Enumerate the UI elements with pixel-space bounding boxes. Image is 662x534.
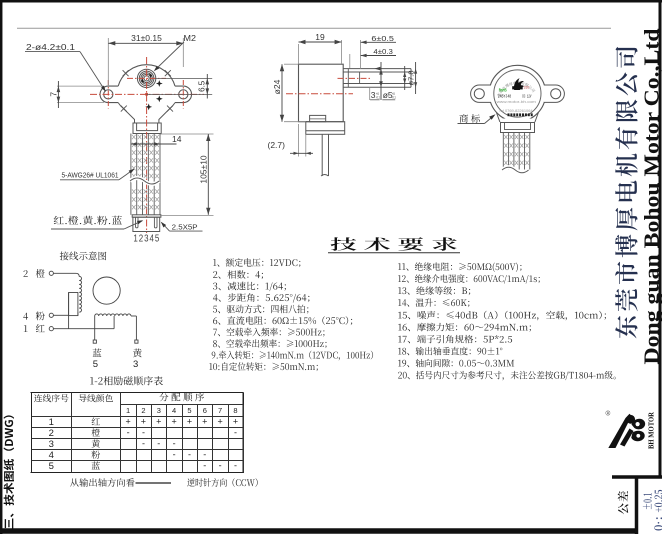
- svg-text:1: 1: [126, 406, 130, 415]
- svg-text:10:自定位转矩：≥50mN.m；: 10:自定位转矩：≥50mN.m；: [209, 359, 324, 373]
- svg-text:-0.1: -0.1: [376, 96, 380, 100]
- svg-text:6: 6: [203, 406, 207, 415]
- svg-text:+: +: [218, 417, 223, 427]
- svg-text:蓝: 蓝: [92, 346, 102, 360]
- svg-text:+0.25: +0.25: [651, 490, 662, 513]
- svg-text:1-2相励磁顺序表: 1-2相励磁顺序表: [90, 373, 164, 388]
- svg-text:3: 3: [49, 439, 54, 450]
- svg-text:18、输出轴垂直度：90±1°: 18、输出轴垂直度：90±1°: [398, 345, 503, 358]
- svg-text:东莞市博厚电机有限公司: 东莞市博厚电机有限公司: [608, 42, 643, 339]
- svg-text:4±0.3: 4±0.3: [373, 47, 393, 56]
- svg-text:14: 14: [172, 134, 182, 144]
- svg-text:-: -: [203, 450, 206, 460]
- svg-text:M2: M2: [184, 33, 197, 43]
- svg-text:14、温升：≤60K；: 14、温升：≤60K；: [398, 296, 476, 309]
- svg-text:5: 5: [93, 359, 98, 370]
- svg-text:105±10: 105±10: [199, 155, 209, 184]
- svg-text:3: 3: [157, 406, 161, 415]
- svg-text:导线颜色: 导线颜色: [78, 392, 113, 405]
- svg-text:2: 2: [23, 266, 28, 280]
- svg-text:Tel 0769-82261064: Tel 0769-82261064: [499, 109, 533, 113]
- svg-text:-: -: [188, 450, 191, 460]
- svg-text:+: +: [187, 417, 192, 427]
- svg-text:-: -: [157, 439, 160, 449]
- svg-text:商 标: 商 标: [459, 111, 481, 125]
- svg-text:逆时针方向（CCW）: 逆时针方向（CCW）: [187, 475, 263, 489]
- svg-text:2-ø4.2±0.1: 2-ø4.2±0.1: [26, 42, 75, 52]
- svg-text:310: 310: [524, 85, 530, 89]
- svg-text:-: -: [142, 428, 145, 438]
- svg-text:ø24: ø24: [272, 79, 282, 94]
- svg-text:®: ®: [606, 410, 611, 418]
- svg-text:-: -: [234, 461, 237, 471]
- svg-text:Dong guan Bohou Motor Co.,Ltd: Dong guan Bohou Motor Co.,Ltd: [639, 28, 662, 364]
- svg-text:三、技术图纸（DWG）: 三、技术图纸（DWG）: [1, 408, 17, 530]
- svg-text:19: 19: [315, 32, 325, 42]
- svg-text:-: -: [234, 428, 237, 438]
- svg-text:8: 8: [233, 406, 237, 415]
- svg-text:7: 7: [49, 92, 59, 97]
- svg-text:-: -: [173, 450, 176, 460]
- svg-text:2: 2: [141, 406, 145, 415]
- svg-text:公差: 公差: [616, 490, 632, 515]
- svg-text:5: 5: [187, 406, 191, 415]
- svg-text:20、括号内尺寸为参考尺寸，未注公差按GB/T1804-m级: 20、括号内尺寸为参考尺寸，未注公差按GB/T1804-m级。: [398, 369, 622, 382]
- svg-text:+: +: [125, 417, 130, 427]
- svg-text:19、轴向间隙：0.05～0.3MM: 19、轴向间隙：0.05～0.3MM: [398, 357, 515, 370]
- svg-text:(2.7): (2.7): [268, 140, 286, 150]
- svg-text:红.橙.黄.粉.蓝: 红.橙.黄.粉.蓝: [53, 213, 122, 227]
- svg-text:13、绝缘等级：B；: 13、绝缘等级：B；: [398, 284, 477, 297]
- svg-text:5: 5: [49, 461, 54, 472]
- svg-text:-0.1: -0.1: [392, 96, 396, 100]
- svg-text:-: -: [142, 439, 145, 449]
- svg-text:BH MOTOR: BH MOTOR: [648, 411, 656, 449]
- svg-text:24BYJ48: 24BYJ48: [498, 94, 512, 99]
- svg-text:+: +: [233, 417, 238, 427]
- svg-text:7: 7: [218, 406, 222, 415]
- svg-text:-: -: [173, 439, 176, 449]
- svg-text:分 配 顺 序: 分 配 顺 序: [159, 390, 205, 404]
- svg-text:从输出轴方向看: 从输出轴方向看: [70, 475, 135, 489]
- svg-text:+: +: [141, 417, 146, 427]
- svg-text:4: 4: [49, 450, 54, 461]
- svg-text:6±0.5: 6±0.5: [371, 34, 394, 43]
- svg-text:技 术 要 求: 技 术 要 求: [330, 234, 458, 255]
- svg-text:31±0.15: 31±0.15: [131, 33, 162, 43]
- svg-text:17、端子引角规格：5P*2.5: 17、端子引角规格：5P*2.5: [398, 332, 513, 345]
- svg-text:2.5X5P: 2.5X5P: [172, 222, 198, 231]
- svg-text:黄: 黄: [133, 346, 143, 360]
- svg-text:12345: 12345: [133, 234, 160, 245]
- svg-text:蓝: 蓝: [91, 459, 100, 472]
- svg-text:橙: 橙: [36, 266, 46, 280]
- svg-text:ø7.8: ø7.8: [407, 70, 416, 85]
- svg-text:3: 3: [133, 359, 138, 370]
- svg-text:11、绝缘电阻：≥50MΩ(500V)；: 11、绝缘电阻：≥50MΩ(500V)；: [398, 260, 528, 273]
- svg-text:www.motor-bh.com: www.motor-bh.com: [497, 100, 536, 104]
- svg-text:+: +: [156, 417, 161, 427]
- svg-text:4: 4: [172, 406, 176, 415]
- svg-text:-: -: [203, 461, 206, 471]
- svg-text:16、摩擦力矩：60～294mN.m；: 16、摩擦力矩：60～294mN.m；: [398, 320, 538, 333]
- svg-text:-: -: [219, 461, 222, 471]
- svg-text:RoHS: RoHS: [499, 88, 507, 93]
- svg-text:连线序号: 连线序号: [34, 392, 69, 405]
- svg-text:红: 红: [36, 321, 46, 335]
- svg-text:-: -: [127, 428, 130, 438]
- svg-text:1: 1: [23, 321, 28, 335]
- svg-text:+: +: [202, 417, 207, 427]
- svg-text:6.5: 6.5: [197, 80, 206, 92]
- svg-text:5-AWG26# UL1061: 5-AWG26# UL1061: [62, 171, 119, 180]
- svg-text:+: +: [171, 417, 176, 427]
- svg-text:2: 2: [49, 428, 54, 439]
- svg-text:12、绝缘介电强度：600VAC/1mA/1s；: 12、绝缘介电强度：600VAC/1mA/1s；: [398, 272, 546, 285]
- svg-text:1: 1: [49, 417, 54, 428]
- svg-text:接线示意图: 接线示意图: [60, 249, 108, 263]
- svg-text:15、噪声：≤40dB（A）（100Hz，空载，10cm）；: 15、噪声：≤40dB（A）（100Hz，空载，10cm）；: [398, 308, 613, 321]
- svg-text:DC 12V: DC 12V: [522, 94, 531, 99]
